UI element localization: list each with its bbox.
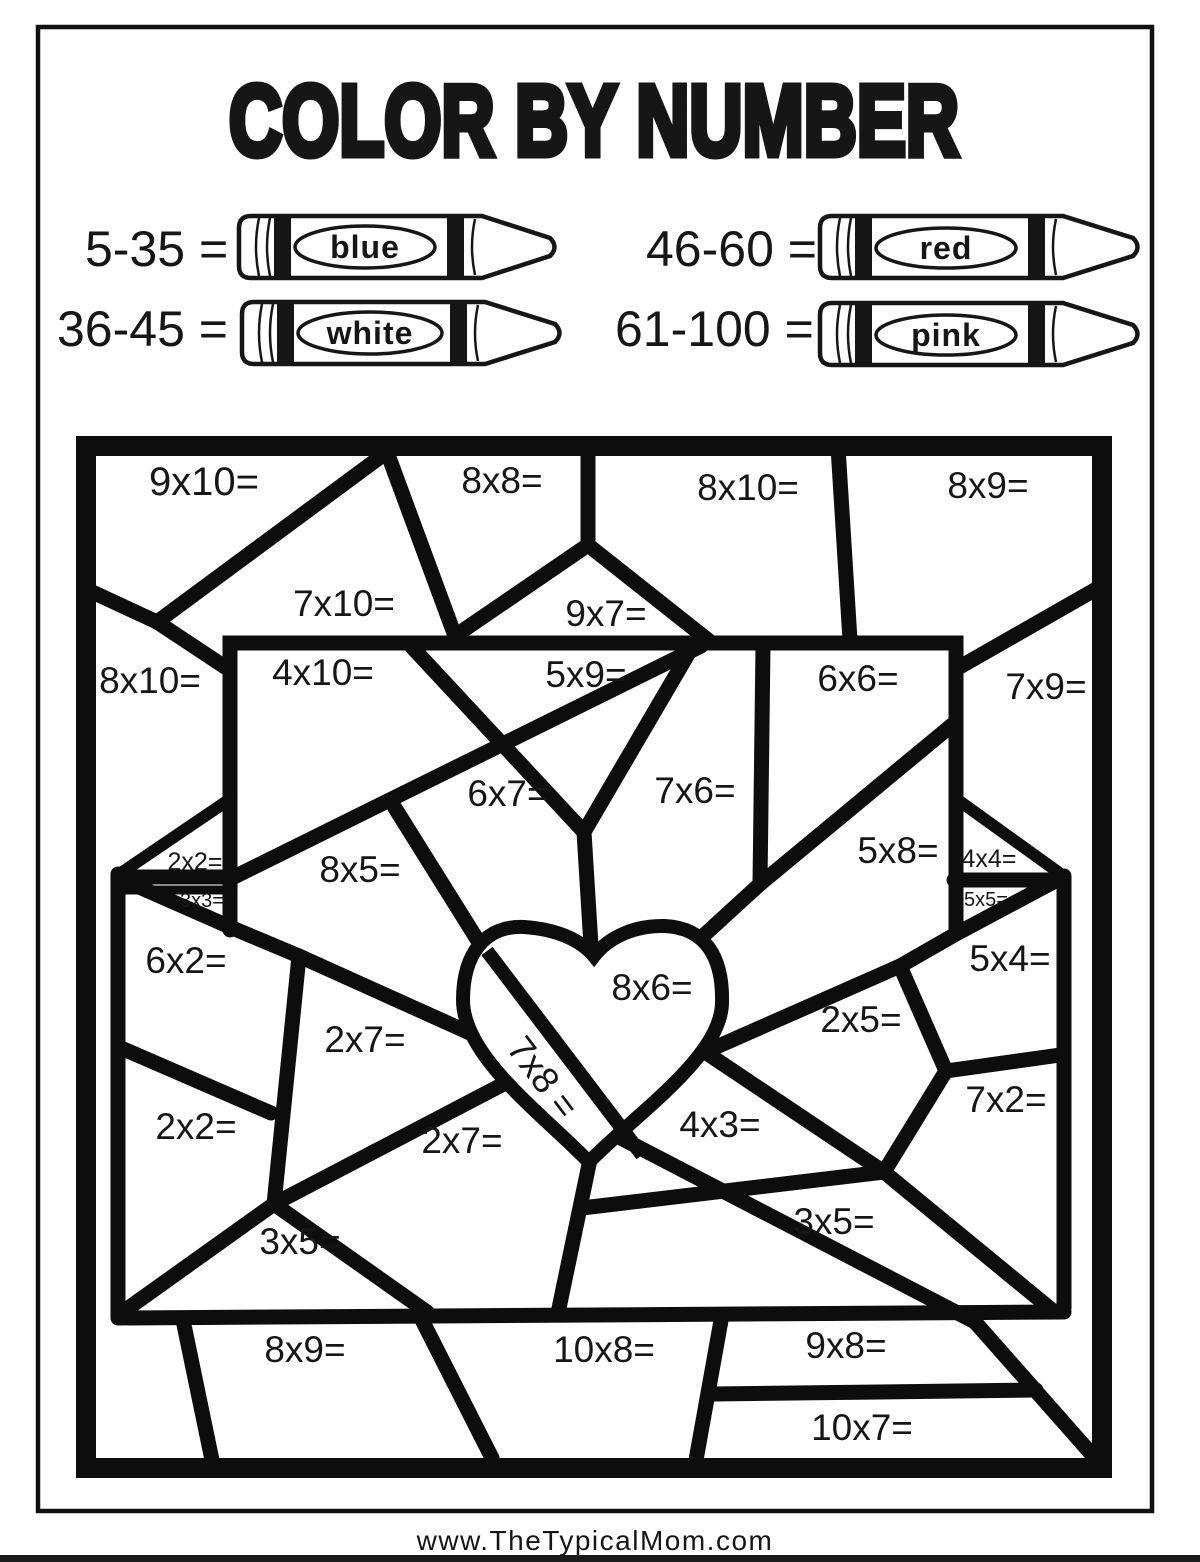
svg-text:4x4=: 4x4= bbox=[962, 845, 1017, 873]
svg-text:10x8=: 10x8= bbox=[553, 1329, 655, 1370]
svg-text:10x7=: 10x7= bbox=[811, 1407, 913, 1448]
svg-text:9x8=: 9x8= bbox=[805, 1325, 886, 1366]
svg-text:2x7=: 2x7= bbox=[324, 1019, 405, 1060]
svg-text:7x2=: 7x2= bbox=[965, 1079, 1046, 1120]
svg-text:8x9=: 8x9= bbox=[264, 1329, 345, 1370]
svg-text:7x9=: 7x9= bbox=[1005, 666, 1086, 707]
svg-text:5x9=: 5x9= bbox=[545, 654, 626, 695]
svg-text:3x3=: 3x3= bbox=[180, 890, 224, 912]
svg-text:8x5=: 8x5= bbox=[319, 849, 400, 890]
svg-text:6x6=: 6x6= bbox=[817, 658, 898, 699]
svg-text:3x5=: 3x5= bbox=[793, 1201, 874, 1242]
svg-text:61-100 =: 61-100 = bbox=[615, 301, 814, 357]
svg-text:5x8=: 5x8= bbox=[857, 830, 938, 871]
svg-text:2x7=: 2x7= bbox=[421, 1120, 502, 1161]
svg-text:4x10=: 4x10= bbox=[272, 652, 374, 693]
svg-text:red: red bbox=[920, 230, 973, 266]
svg-text:46-60 =: 46-60 = bbox=[646, 221, 817, 277]
svg-text:5x5=: 5x5= bbox=[964, 889, 1008, 911]
svg-text:2x5=: 2x5= bbox=[820, 999, 901, 1040]
svg-text:white: white bbox=[326, 315, 414, 351]
svg-text:8x9=: 8x9= bbox=[947, 465, 1028, 506]
svg-text:8x10=: 8x10= bbox=[697, 467, 799, 508]
svg-text:7x10=: 7x10= bbox=[293, 583, 395, 624]
svg-text:6x7=: 6x7= bbox=[467, 773, 548, 814]
svg-text:6x2=: 6x2= bbox=[145, 940, 226, 981]
svg-text:pink: pink bbox=[911, 317, 981, 353]
svg-text:blue: blue bbox=[330, 229, 400, 265]
svg-text:8x8=: 8x8= bbox=[461, 460, 542, 501]
svg-text:8x6=: 8x6= bbox=[611, 967, 692, 1008]
svg-text:3x5=: 3x5= bbox=[259, 1221, 340, 1262]
svg-text:36-45 =: 36-45 = bbox=[57, 301, 228, 357]
svg-text:4x3=: 4x3= bbox=[679, 1104, 760, 1145]
svg-text:www.TheTypicalMom.com: www.TheTypicalMom.com bbox=[416, 1525, 774, 1556]
svg-text:2x2=: 2x2= bbox=[168, 848, 223, 876]
svg-text:2x2=: 2x2= bbox=[155, 1106, 236, 1147]
svg-text:8x10=: 8x10= bbox=[99, 660, 201, 701]
svg-text:5-35 =: 5-35 = bbox=[85, 221, 228, 277]
svg-text:9x10=: 9x10= bbox=[149, 460, 259, 504]
svg-text:COLOR BY NUMBER: COLOR BY NUMBER bbox=[229, 65, 959, 177]
svg-text:7x6=: 7x6= bbox=[654, 770, 735, 811]
svg-text:5x4=: 5x4= bbox=[969, 938, 1050, 979]
svg-text:9x7=: 9x7= bbox=[565, 593, 646, 634]
